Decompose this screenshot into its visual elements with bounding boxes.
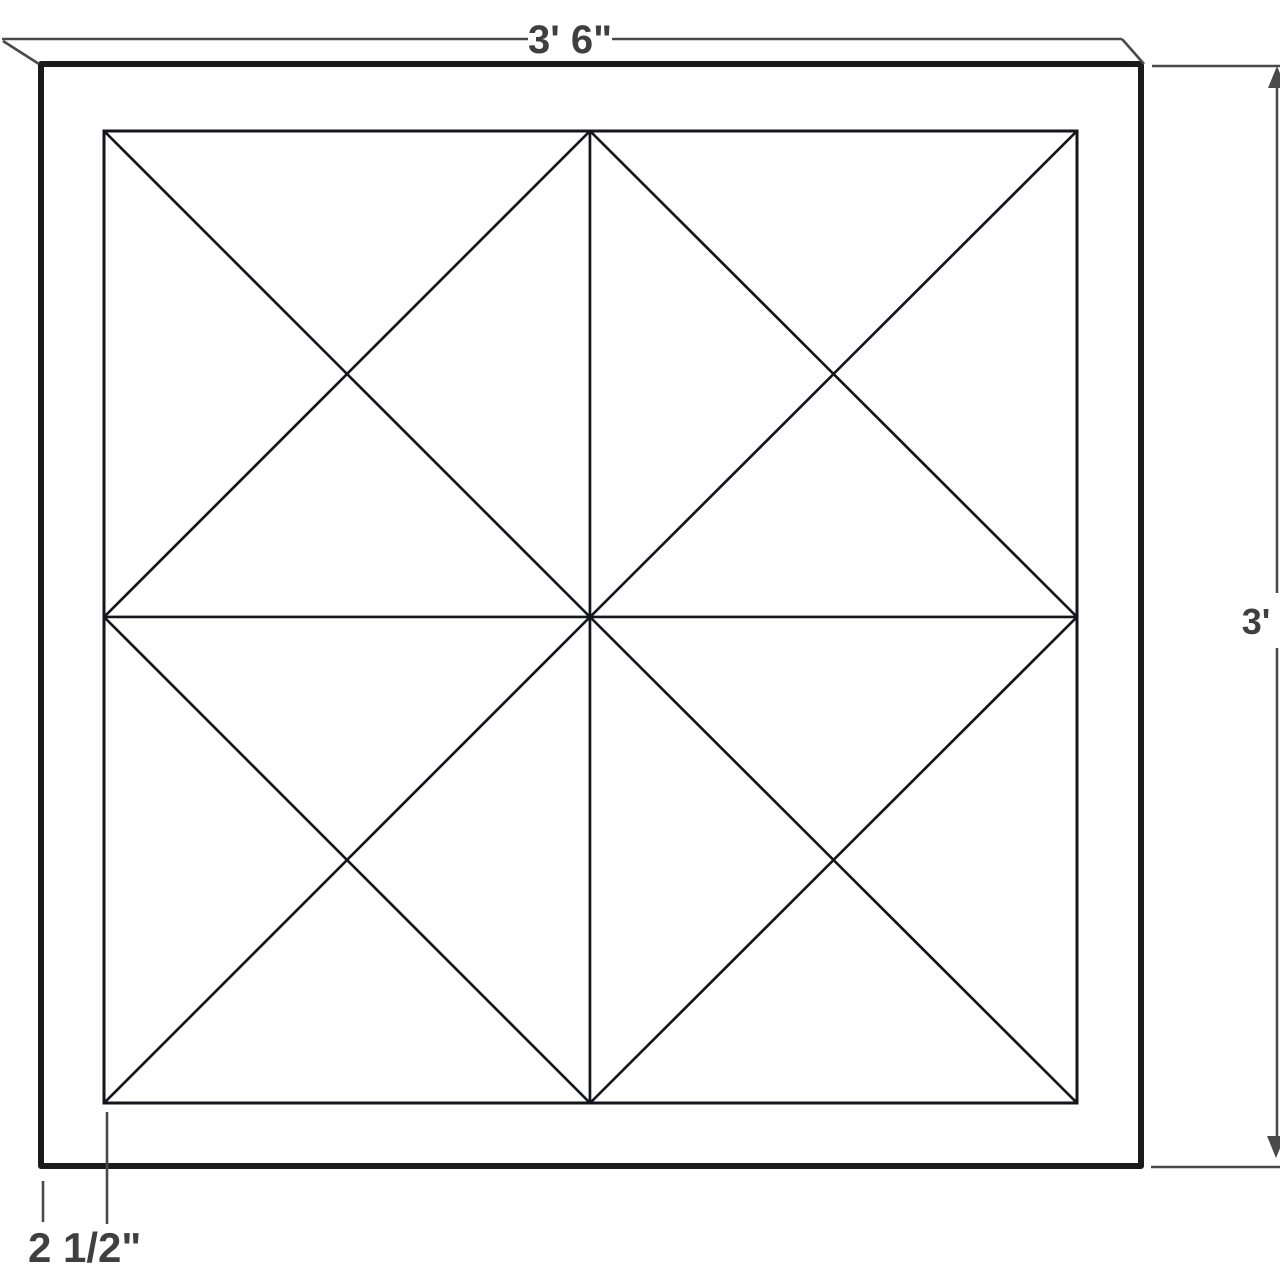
up-arrowhead-icon (1268, 66, 1280, 88)
right-height-label: 3' (1242, 601, 1271, 642)
block-bottom-right (590, 617, 1077, 1103)
top-width-label: 3' 6" (528, 18, 612, 62)
block-top-left (104, 131, 590, 617)
down-arrowhead-icon (1267, 1136, 1280, 1158)
quilt-diagram: 3' 6" 3' (0, 0, 1280, 1280)
top-width-dimension: 3' 6" (2, 18, 1144, 64)
quilt-plan-canvas: 3' 6" 3' (0, 0, 1280, 1280)
left-miter-tick (3, 41, 39, 64)
block-top-right (590, 131, 1077, 617)
border-width-label: 2 1/2" (28, 1224, 141, 1271)
right-height-dimension: 3' (1151, 66, 1280, 1167)
quilt-design (104, 131, 1077, 1103)
right-miter-tick (1122, 39, 1144, 64)
block-bottom-left (104, 617, 590, 1103)
